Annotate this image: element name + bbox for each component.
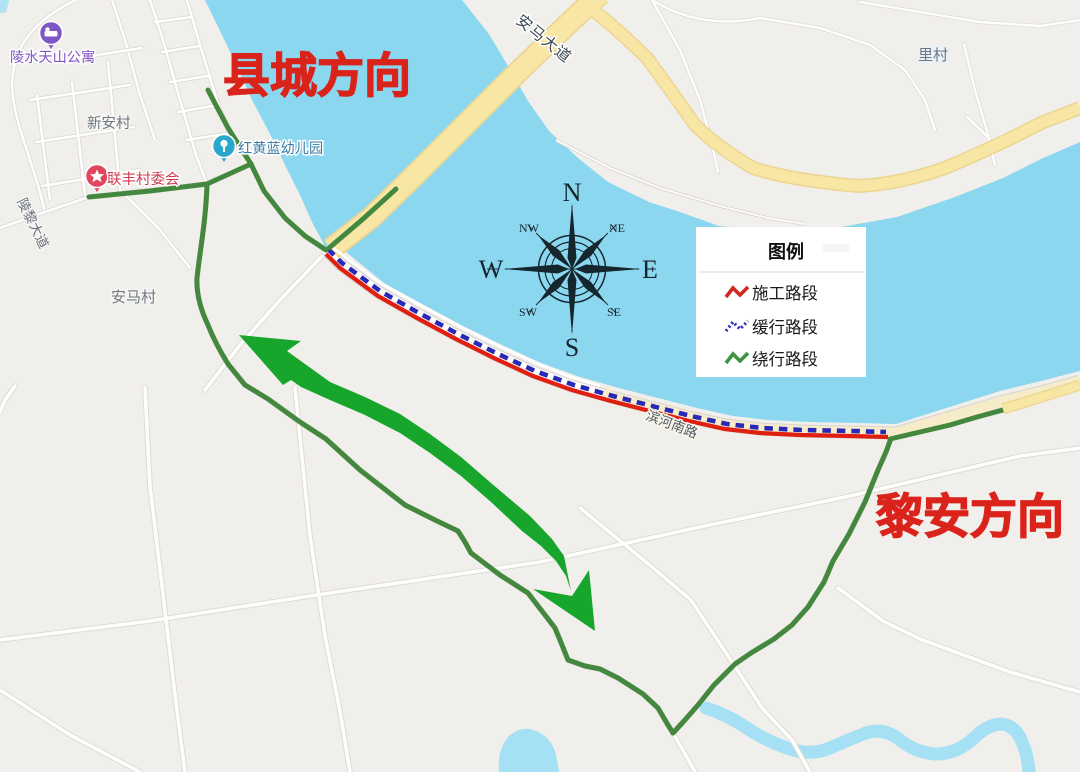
svg-text:绕行路段: 绕行路段	[752, 350, 818, 369]
svg-text:SW: SW	[519, 305, 538, 319]
svg-text:新安村: 新安村	[87, 115, 131, 132]
svg-text:里村: 里村	[918, 47, 948, 64]
svg-text:安马村: 安马村	[111, 289, 156, 306]
svg-text:NW: NW	[519, 221, 540, 235]
svg-text:SE: SE	[607, 305, 621, 319]
svg-text:黎安方向: 黎安方向	[876, 490, 1064, 543]
svg-text:N: N	[563, 178, 582, 207]
svg-text:图例: 图例	[768, 241, 804, 262]
svg-text:联丰村委会: 联丰村委会	[107, 171, 180, 188]
svg-text:县城方向: 县城方向	[223, 49, 411, 102]
svg-text:S: S	[565, 333, 579, 362]
svg-text:陵水天山公寓: 陵水天山公寓	[10, 49, 95, 66]
svg-text:E: E	[642, 255, 658, 284]
svg-text:缓行路段: 缓行路段	[752, 318, 818, 337]
svg-text:W: W	[479, 255, 504, 284]
svg-text:红黄蓝幼儿园: 红黄蓝幼儿园	[238, 140, 323, 157]
svg-text:施工路段: 施工路段	[752, 284, 818, 303]
svg-text:NE: NE	[609, 221, 625, 235]
